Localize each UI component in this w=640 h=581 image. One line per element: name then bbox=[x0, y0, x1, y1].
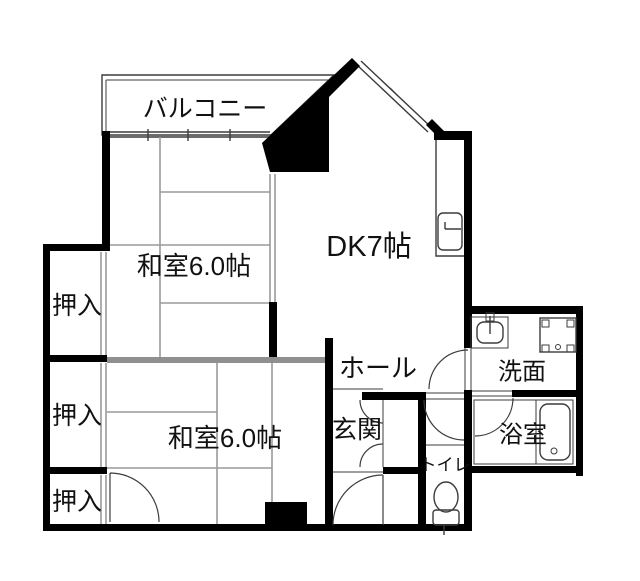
window-dk-diagonal bbox=[357, 61, 432, 132]
sliding-door-washitsu-dk bbox=[270, 174, 275, 302]
label-genkan: 玄関 bbox=[332, 416, 382, 444]
bath-door-frame bbox=[472, 391, 512, 396]
floor-plan: バルコニー 和室6.0帖 DK7帖 押入 押入 押入 和室6.0帖 ホール 玄関… bbox=[0, 0, 640, 581]
toilet-door-frame bbox=[426, 393, 464, 399]
label-oshiire-3: 押入 bbox=[52, 488, 102, 516]
wall-bath-bottom bbox=[464, 466, 583, 473]
door-entrance bbox=[333, 475, 383, 525]
wall-jog bbox=[43, 244, 110, 251]
wall-washroom-top bbox=[464, 306, 583, 314]
wall-genkan-top bbox=[362, 392, 426, 400]
floor-plan-svg: バルコニー 和室6.0帖 DK7帖 押入 押入 押入 和室6.0帖 ホール 玄関… bbox=[0, 0, 640, 581]
wall-closet-divider-2 bbox=[43, 467, 107, 474]
door-lower-washitsu bbox=[110, 473, 159, 522]
label-washitsu-upper: 和室6.0帖 bbox=[137, 251, 251, 281]
wall-left-outer bbox=[43, 244, 50, 531]
kitchen-sink-icon bbox=[438, 213, 462, 250]
wash-basin-icon bbox=[471, 313, 508, 348]
tatami-lines-upper-washitsu bbox=[107, 137, 270, 357]
wall-bottom-outer bbox=[43, 524, 470, 531]
label-hall: ホール bbox=[339, 353, 417, 383]
door-toilet bbox=[424, 400, 464, 440]
pillar-lower-washitsu bbox=[265, 502, 307, 525]
label-oshiire-2: 押入 bbox=[52, 402, 102, 430]
label-balcony: バルコニー bbox=[143, 95, 268, 123]
wall-closet-divider-1 bbox=[43, 355, 107, 362]
wall-upper-left bbox=[102, 131, 110, 251]
label-bath: 浴室 bbox=[499, 422, 547, 449]
wall-dk-right-upper bbox=[464, 131, 472, 348]
kitchen-counter bbox=[436, 140, 464, 256]
door-genkan-closet-bottom bbox=[360, 444, 383, 467]
label-toilet: トイレ bbox=[420, 456, 471, 475]
door-washroom bbox=[429, 350, 468, 389]
washroom-door-frame bbox=[465, 348, 471, 390]
label-oshiire-1: 押入 bbox=[52, 292, 102, 320]
wall-washroom-bath-divider bbox=[512, 390, 583, 397]
label-washitsu-lower: 和室6.0帖 bbox=[168, 423, 282, 453]
walls bbox=[43, 58, 583, 531]
washing-machine-pan-icon bbox=[540, 318, 576, 352]
label-senmen: 洗面 bbox=[498, 359, 546, 386]
wall-washitsu-dk-lower bbox=[269, 302, 277, 363]
wall-washitsu-divider-gray bbox=[107, 357, 333, 363]
label-dk: DK7帖 bbox=[326, 230, 411, 263]
wall-top-stub bbox=[434, 131, 472, 140]
